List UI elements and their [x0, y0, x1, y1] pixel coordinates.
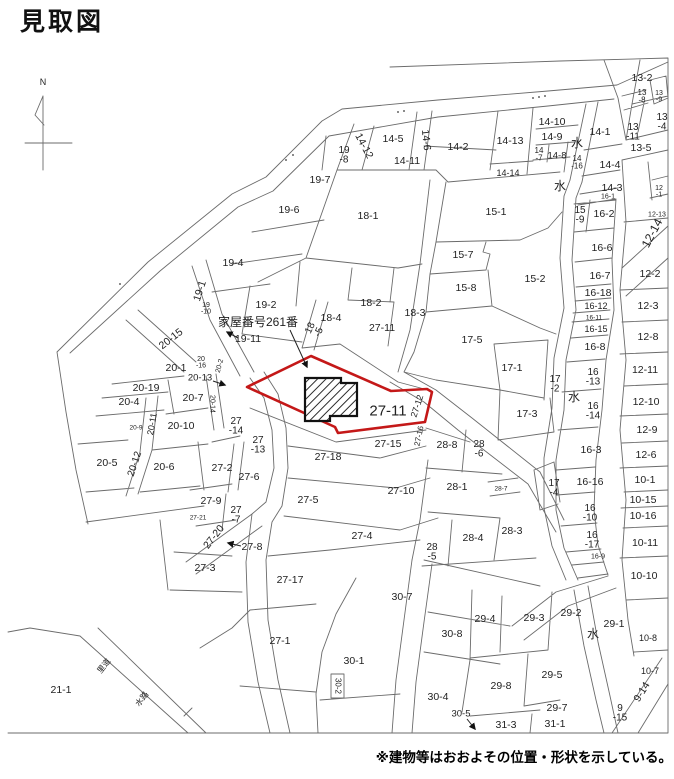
parcel-label: 12-9	[636, 424, 657, 436]
parcel-label: 16-13	[586, 367, 601, 388]
parcel-label: 14-5	[382, 133, 403, 145]
parcel-label: 27-4	[351, 530, 372, 542]
parcel-label: 28-1	[446, 481, 467, 493]
parcel-27-28-area	[160, 372, 536, 733]
parcel-label: 12-2	[639, 268, 660, 280]
parcel-label: 28-8	[436, 439, 457, 451]
water-label: 水	[571, 136, 583, 150]
parcel-label: 19-11	[235, 333, 261, 345]
parcel-label: 12-1	[655, 185, 663, 199]
parcel-label: 27-18	[315, 451, 342, 463]
parcel-label: 20-7	[182, 392, 203, 404]
parcel-label: 20-16	[196, 356, 206, 370]
parcel-label: 13-4	[656, 112, 668, 133]
parcel-label: 14-16	[571, 154, 583, 171]
parcel-label: 28-3	[501, 525, 522, 537]
parcel-label: 9-15	[613, 703, 628, 724]
parcel-label: 18-4	[320, 312, 341, 324]
parcel-label: 14-12	[352, 131, 375, 160]
parcel-label: 29-1	[603, 618, 624, 630]
parcel-label: 19-8	[338, 145, 350, 166]
parcel-label: 10-16	[630, 510, 657, 522]
parcel-label: 13-9	[655, 90, 663, 104]
parcel-label: 19-7	[309, 174, 330, 186]
parcel-label: 14-11	[394, 155, 420, 167]
parcel-label: 17-3	[516, 408, 537, 420]
parcel-label: 12-10	[633, 396, 660, 408]
parcel-label: 30-2	[334, 678, 343, 695]
parcel-label: 12-6	[635, 449, 656, 461]
parcel-label: 27-17	[277, 574, 304, 586]
parcel-label: 15-1	[485, 206, 506, 218]
parcel-label: 27-16	[412, 425, 425, 447]
parcel-label: 12-13	[648, 212, 666, 219]
parcel-label: 16-3	[580, 444, 601, 456]
parcel-label: 28-6	[473, 439, 485, 460]
parcel-label: 水路	[133, 689, 151, 708]
parcel-label: 15-9	[574, 205, 586, 226]
parcel-label: 27-9	[200, 495, 221, 507]
parcel-label: 29-4	[474, 613, 495, 625]
parcel-label: 10-1	[634, 474, 655, 486]
parcel-label: 19-4	[222, 257, 243, 269]
parcel-label: 21-1	[50, 684, 71, 696]
parcel-label: 31-1	[544, 718, 565, 730]
parcel-label: 16-8	[584, 341, 605, 353]
building-footprint	[305, 378, 357, 421]
parcel-label: 27-14	[229, 416, 244, 437]
parcel-label: 13-5	[630, 142, 651, 154]
parcel-label: 30-4	[427, 691, 448, 703]
water-label: 水	[554, 179, 566, 193]
parcel-label: 27-3	[194, 562, 215, 574]
north-arrow	[25, 96, 72, 170]
parcel-label: 20-19	[133, 382, 160, 394]
parcel-label: 16-14	[586, 401, 601, 422]
leader-30-5	[467, 719, 475, 729]
parcel-label: 16-10	[583, 503, 598, 524]
parcel-label: 28-7	[494, 486, 507, 493]
parcel-label: 10-15	[630, 494, 657, 506]
cadastral-sketch-page: 見取図 ※建物等はおおよその位置・形状を示している。	[0, 0, 674, 779]
parcel-label: 16-15	[584, 324, 607, 334]
water-label: 水	[587, 627, 599, 641]
parcel-label: 27-15	[375, 438, 402, 450]
parcel-label: 14-10	[539, 116, 566, 128]
parcel-label: 27-1	[269, 635, 290, 647]
parcel-label: 13-8	[638, 88, 647, 105]
parcel-label: 12-3	[637, 300, 658, 312]
parcel-label: 20-2	[215, 358, 225, 373]
parcel-label: 16-7	[589, 270, 610, 282]
parcel-label: 20-14	[209, 395, 216, 413]
parcel-label: 27-2	[211, 462, 232, 474]
parcel-label: 14-14	[496, 168, 519, 178]
parcel-label: 30-8	[441, 628, 462, 640]
parcel-label: 27-5	[297, 494, 318, 506]
parcel-label: 17-4	[548, 478, 560, 499]
parcel-label: 13-11	[626, 122, 640, 143]
parcel-label: 27-10	[388, 485, 415, 497]
compass-label: N	[40, 77, 47, 87]
annotation-label: 家屋番号261番	[218, 314, 298, 329]
parcel-label: 20-1	[165, 362, 186, 374]
parcel-label: 16-18	[585, 287, 612, 299]
parcel-label: 18-3	[404, 307, 425, 319]
parcel-label: 13-2	[631, 72, 652, 84]
parcel-label: 31-3	[495, 719, 516, 731]
parcel-label: 12-8	[637, 331, 658, 343]
parcel-label: 14-2	[447, 141, 468, 153]
parcel-label: 14-1	[589, 126, 610, 138]
parcel-label: 20-13	[188, 373, 212, 384]
parcel-label: 18-2	[360, 297, 381, 309]
map-canvas: N家屋番号261番19-719-814-1214-514-614-214-111…	[0, 0, 674, 779]
parcel-label: 30-1	[343, 655, 364, 667]
parcel-label: 29-7	[546, 702, 567, 714]
parcel-label: 29-3	[523, 612, 544, 624]
water-label: 水	[568, 390, 580, 404]
survey-dots	[119, 95, 546, 285]
parcel-label: 10-8	[639, 633, 657, 643]
parcel-label: 16-1	[601, 194, 615, 201]
parcel-label: 14-6	[419, 129, 433, 151]
parcel-label: 12-14	[639, 216, 666, 250]
highlighted-parcel-label: 27-11	[369, 403, 406, 420]
parcel-label: 16-17	[585, 530, 600, 551]
parcel-label: 10-11	[632, 537, 658, 549]
parcel-label: 10-7	[641, 666, 659, 676]
parcel-label: 20-6	[153, 461, 174, 473]
parcel-label: 27-8	[241, 541, 262, 553]
parcel-label: 27-20	[201, 523, 227, 552]
parcel-label: 16-11	[586, 315, 603, 322]
top-parcel-row	[242, 102, 598, 390]
parcel-label: 29-5	[541, 669, 562, 681]
parcel-label: 15-2	[524, 273, 545, 285]
parcel-label: 15-7	[452, 249, 473, 261]
parcel-label: 19-1	[191, 279, 209, 303]
parcel-label: 20-9	[129, 425, 142, 432]
parcel-label: 19-10	[201, 302, 211, 316]
parcel-label: 30-5	[451, 709, 470, 720]
parcel-label: 18-1	[357, 210, 378, 222]
parcel-label: 14-13	[497, 135, 524, 147]
parcel-label: 29-2	[560, 607, 581, 619]
parcel-label: 20-5	[96, 457, 117, 469]
parcel-label: 14-9	[541, 131, 562, 143]
parcel-label: 29-8	[490, 680, 511, 692]
parcel-label: 19-2	[255, 299, 276, 311]
parcel-label: 28-4	[462, 532, 483, 544]
parcel-label: 10-10	[631, 570, 658, 582]
parcel-label: 27-13	[251, 435, 266, 456]
parcel-label: 20-12	[126, 450, 145, 478]
parcel-label: 16-6	[591, 242, 612, 254]
parcel-label: 15-8	[455, 282, 476, 294]
parcel-label: 20-10	[168, 420, 195, 432]
parcel-label: 14-3	[601, 182, 622, 194]
leader-20-13	[213, 381, 225, 385]
parcel-label: 17-2	[549, 374, 561, 395]
parcel-label: 里道	[95, 656, 113, 675]
bottom-parcels	[8, 560, 618, 733]
parcel-label: 14-8	[547, 151, 566, 162]
parcel-label: 17-5	[461, 334, 482, 346]
parcel-label: 16-9	[591, 554, 605, 561]
parcel-label: 27-12	[409, 394, 426, 419]
middle-parcels	[390, 182, 564, 532]
parcel-label: 16-2	[593, 208, 614, 220]
parcel-label: 16-16	[577, 476, 604, 488]
parcel-label: 16-12	[584, 301, 607, 311]
parcel-label: 12-11	[632, 364, 658, 376]
parcel-label: 28-5	[426, 542, 438, 563]
parcel-label: 19-6	[278, 204, 299, 216]
parcel-label: 14-4	[599, 159, 620, 171]
parcel-label: 17-1	[501, 362, 522, 374]
parcel-label: 20-4	[118, 396, 139, 408]
parcel-label: 27-7	[230, 505, 242, 526]
parcel-label: 20-11	[145, 412, 159, 436]
parcel-label: 27-11	[369, 322, 395, 334]
parcel-label: 27-6	[238, 471, 259, 483]
parcel-label: 27-21	[190, 515, 207, 522]
parcel-label: 30-7	[391, 591, 412, 603]
parcel-label: 9-14	[631, 680, 652, 704]
